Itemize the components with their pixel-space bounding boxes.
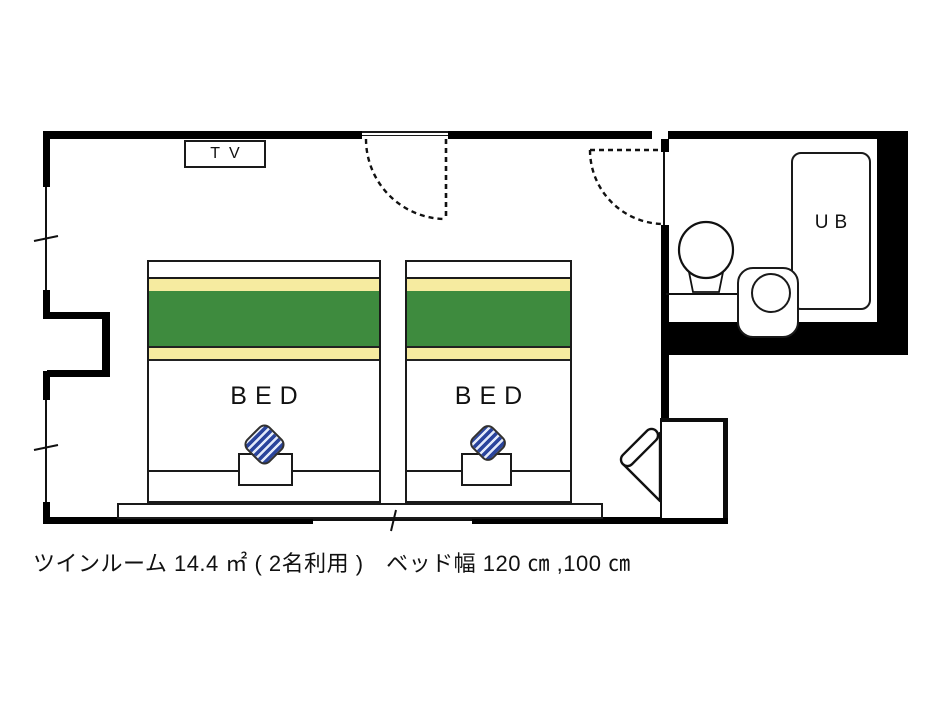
bed-2-blanket <box>407 291 570 348</box>
bed-2-label: BED <box>407 382 570 411</box>
door-swing-arc-entry <box>366 139 446 219</box>
bathtub-label: UB <box>793 212 869 234</box>
desk <box>660 418 728 518</box>
bed-2-yellow-stripe-bottom <box>407 348 570 361</box>
sink-bowl <box>751 273 791 313</box>
bathtub: UB <box>791 152 871 310</box>
floor-plan: TV BED BED UB <box>0 0 940 705</box>
chair-backrest <box>618 426 660 468</box>
wall-notch-top <box>47 312 103 319</box>
wall-notch-bottom <box>47 370 103 377</box>
window-line-left-1 <box>45 187 47 290</box>
bathroom-door-head-gap <box>653 131 668 139</box>
window-opening-line <box>362 135 448 136</box>
tv-label: TV <box>210 145 248 163</box>
window-line-left-2 <box>45 400 47 502</box>
door-swing-arc-bathroom <box>590 150 664 224</box>
chair-seat <box>624 433 660 501</box>
wall-left-seg3 <box>43 371 50 400</box>
window-line-bottom <box>313 519 472 521</box>
bed-platform <box>117 503 603 519</box>
room-caption: ツインルーム 14.4 ㎡ ( 2名利用 ) ベッド幅 120 ㎝ ,100 ㎝ <box>33 546 631 578</box>
bed-1-yellow-stripe-bottom <box>149 348 379 361</box>
bed-1-blanket <box>149 291 379 348</box>
partition-wall-lower <box>661 355 669 418</box>
bed-1-label: BED <box>149 382 379 411</box>
bathroom-door-jamb-line <box>663 152 665 225</box>
wall-left-seg1 <box>43 131 50 187</box>
wall-notch-right <box>102 312 110 377</box>
window-opening-top <box>362 131 448 139</box>
wall-top-mid <box>448 131 652 139</box>
vanity-counter-line <box>666 293 746 295</box>
tv-cabinet: TV <box>184 140 266 168</box>
wall-top-left <box>43 131 362 139</box>
